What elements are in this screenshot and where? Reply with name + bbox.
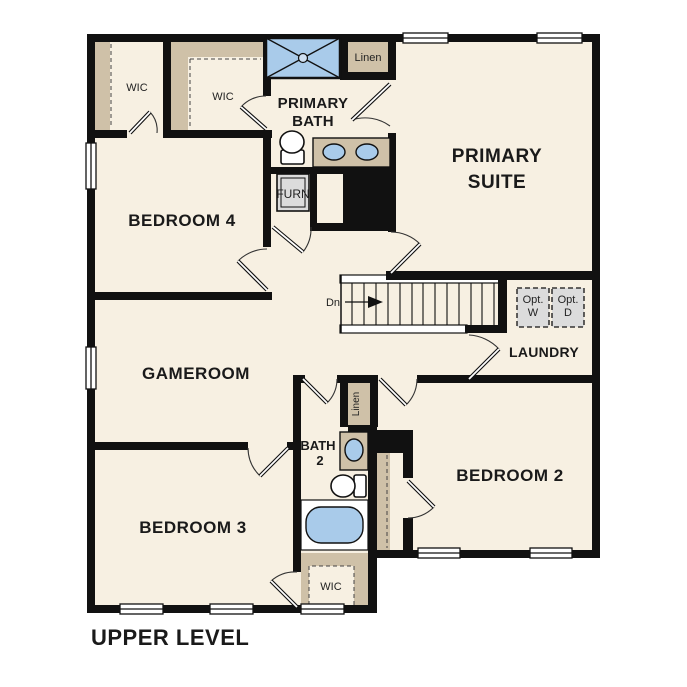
opt-washer-label-2: W	[528, 307, 539, 319]
opt-dryer-label-1: Opt.	[558, 294, 579, 306]
bath2-toilet	[331, 475, 366, 497]
window-wic-bedroom3	[301, 604, 344, 614]
bedroom2-label: BEDROOM 2	[456, 466, 563, 485]
floorplan-page: WIC WIC Linen PRIMARY BATH PRIMARY SUITE…	[0, 0, 687, 687]
window-bedroom2-1	[418, 548, 460, 558]
bathtub	[301, 500, 368, 550]
window-bedroom2-2	[530, 548, 572, 558]
primary-toilet	[280, 131, 304, 164]
window-primary-suite-2	[537, 33, 582, 43]
floor-title: UPPER LEVEL	[91, 625, 249, 650]
sink-icon	[356, 144, 378, 160]
window-primary-suite-1	[403, 33, 448, 43]
mechanical-chase-upper	[343, 174, 390, 223]
wic-bedroom3-label: WIC	[320, 581, 341, 593]
primary-bath-label-2: BATH	[292, 113, 334, 130]
primary-suite-label-1: PRIMARY	[452, 146, 542, 167]
sink-icon	[345, 439, 363, 461]
window-gameroom	[86, 347, 96, 389]
wic-bedroom4-shelf	[95, 42, 110, 130]
window-bedroom3-2	[210, 604, 253, 614]
wic-bedroom4-label: WIC	[126, 82, 147, 94]
gameroom-label: GAMEROOM	[142, 364, 250, 383]
sink-icon	[323, 144, 345, 160]
laundry-label: LAUNDRY	[509, 344, 579, 360]
bedroom2-closet-shelf	[377, 453, 390, 550]
primary-suite-label-2: SUITE	[468, 172, 526, 193]
bath2-label-1: BATH	[300, 438, 335, 453]
linen-upper-label: Linen	[355, 52, 382, 64]
mechanical-chase-lower	[377, 430, 413, 453]
opt-dryer-label-2: D	[564, 307, 572, 319]
bedroom4-label: BEDROOM 4	[128, 211, 236, 230]
opt-washer-label-1: Opt.	[523, 294, 544, 306]
bath2-label-2: 2	[316, 453, 323, 468]
furnace-label: FURN	[276, 187, 309, 201]
primary-vanity-sinks	[313, 138, 390, 167]
primary-bath-label-1: PRIMARY	[278, 95, 349, 112]
floorplan-drawing: WIC WIC Linen PRIMARY BATH PRIMARY SUITE…	[0, 0, 687, 687]
window-bedroom3-1	[120, 604, 163, 614]
linen-lower-label: Linen	[351, 392, 362, 416]
bedroom3-label: BEDROOM 3	[139, 518, 246, 537]
stairs-dn-label: Dn	[326, 297, 340, 309]
bath2-vanity-sink	[340, 432, 368, 470]
shower	[266, 38, 340, 78]
wic-primary-label: WIC	[212, 91, 233, 103]
wic-primary-shelf-top	[171, 42, 263, 57]
window-bedroom4	[86, 143, 96, 189]
